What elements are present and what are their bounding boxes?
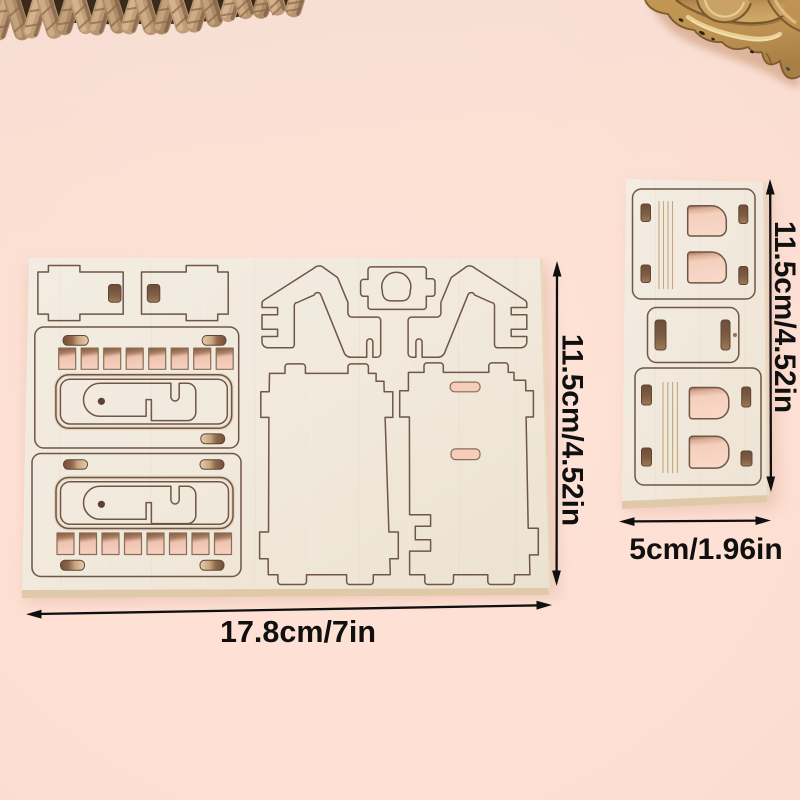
svg-text:17.8cm/7in: 17.8cm/7in <box>220 615 376 649</box>
svg-text:5cm/1.96in: 5cm/1.96in <box>629 533 782 566</box>
svg-text:11.5cm/4.52in: 11.5cm/4.52in <box>768 221 800 413</box>
svg-text:11.5cm/4.52in: 11.5cm/4.52in <box>556 334 589 526</box>
